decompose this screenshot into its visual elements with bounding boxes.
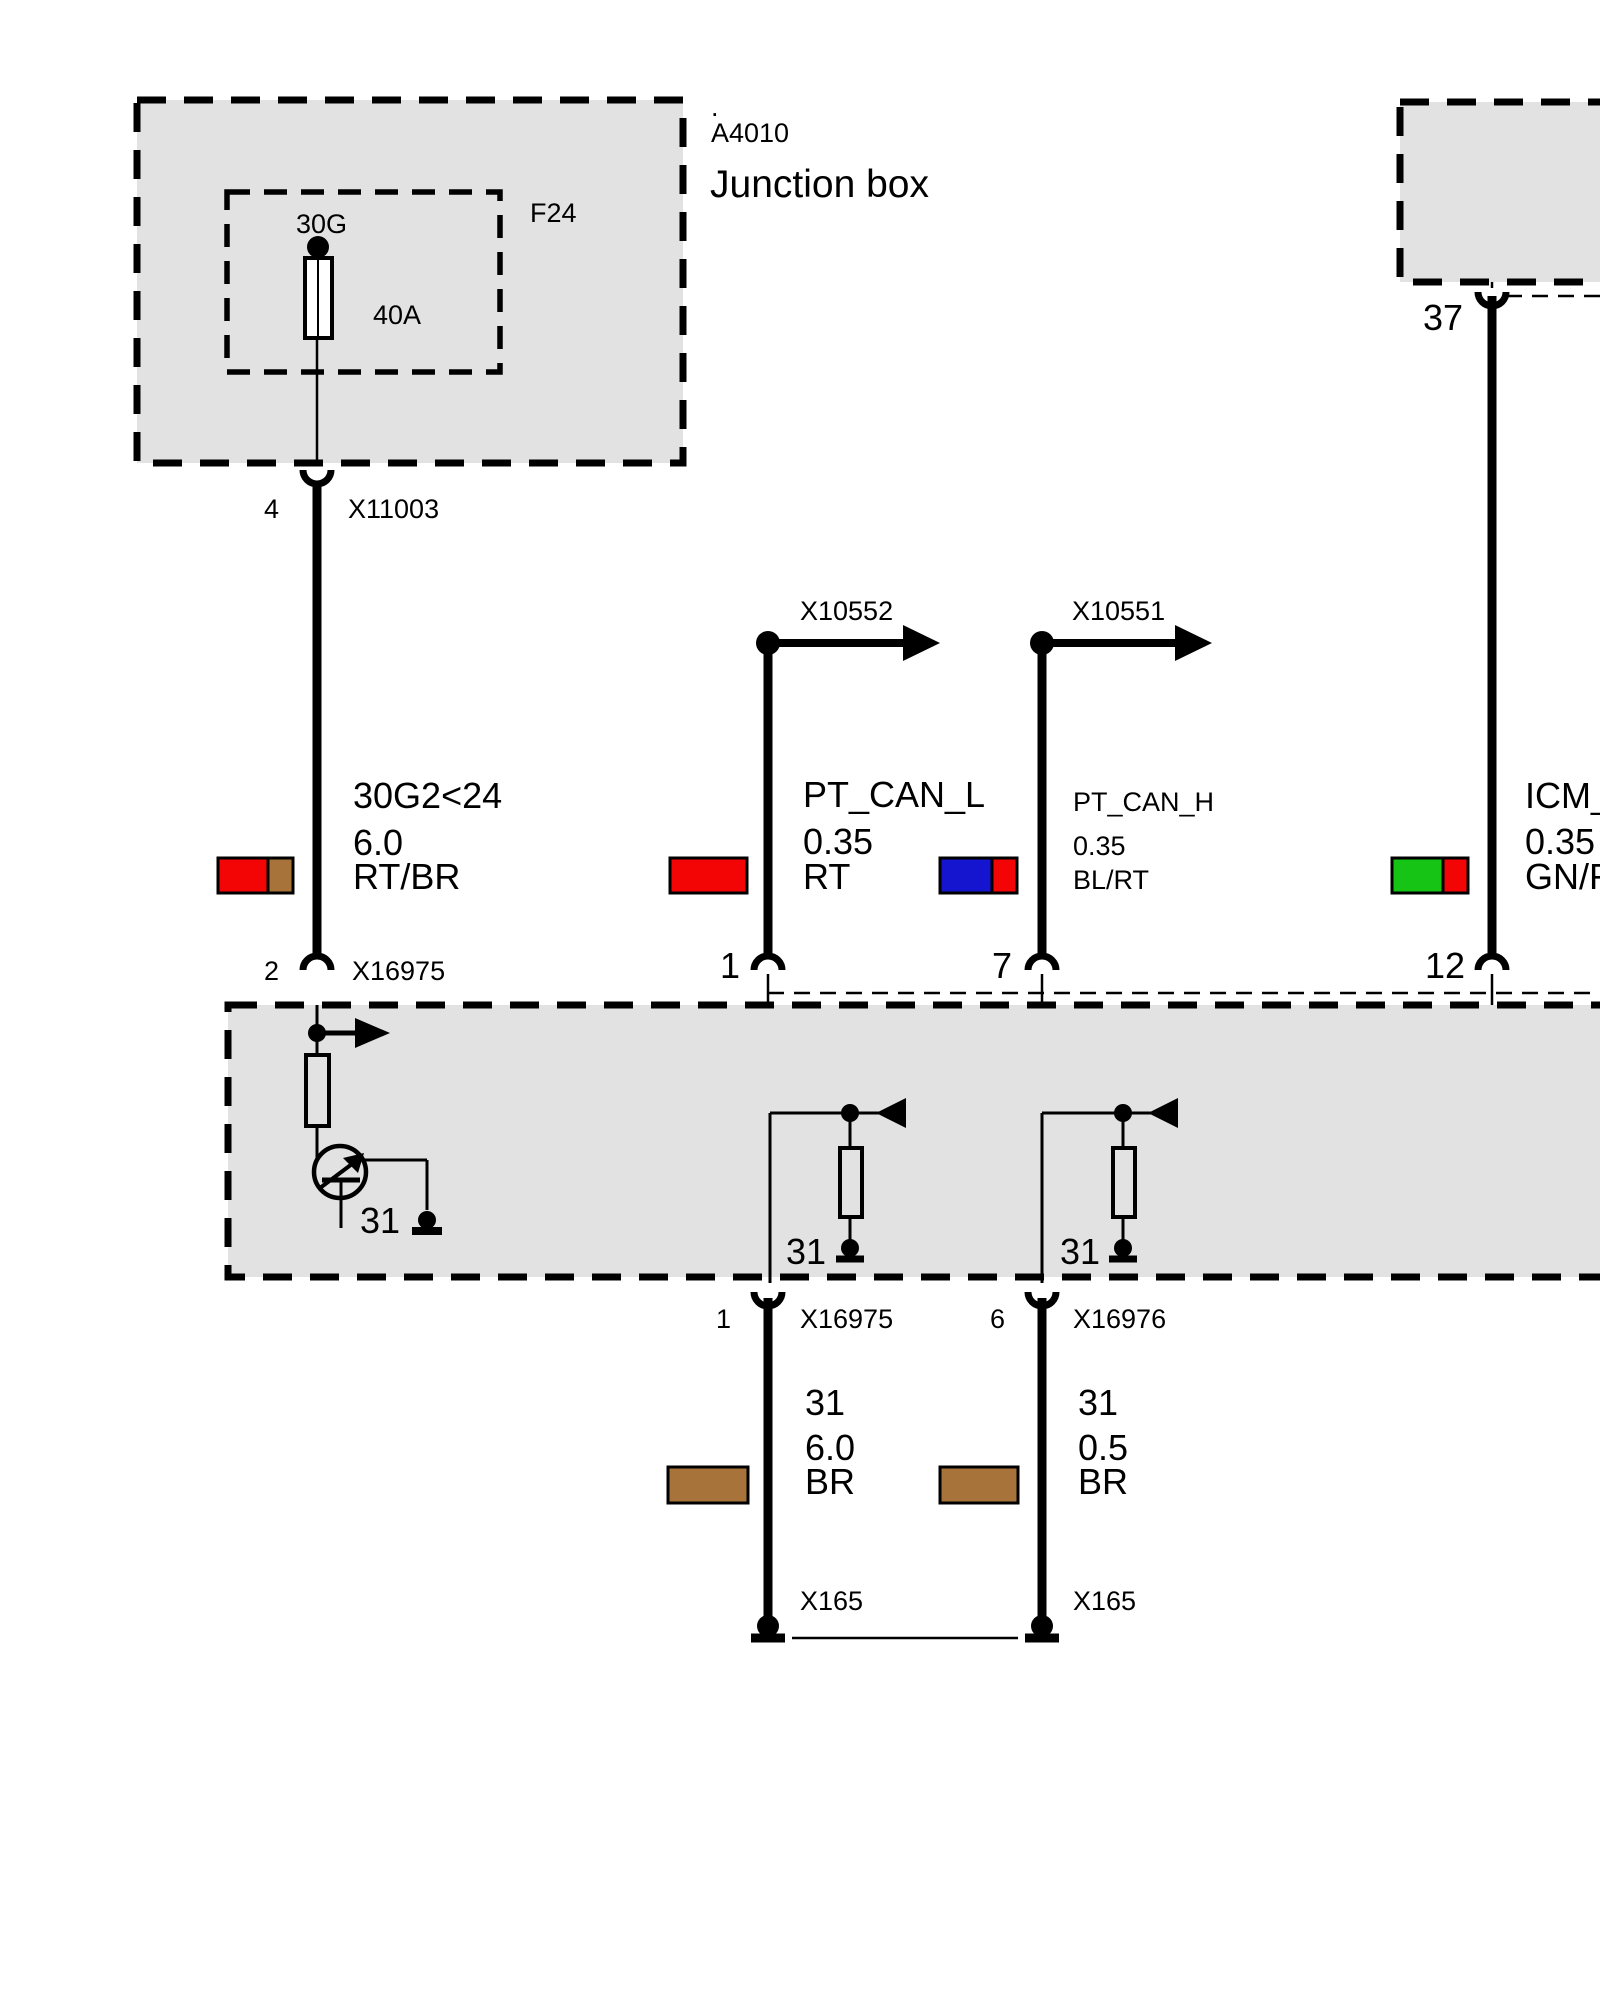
connector-socket-icon <box>1478 956 1506 970</box>
module-pin-12-label: 12 <box>1425 945 1465 986</box>
module-pin-1-label: 1 <box>720 945 740 986</box>
module-pin-7-label: 7 <box>992 945 1012 986</box>
bottom-pin-6-label: 6 <box>990 1304 1005 1334</box>
can-high-gauge-label: 0.35 <box>1073 831 1126 861</box>
fuse-slot-label: F24 <box>530 198 577 228</box>
connector-socket-icon <box>303 470 331 484</box>
ground-left-color-swatch <box>668 1467 748 1503</box>
internal-ground-31-label: 31 <box>360 1200 400 1241</box>
connector-x165-left-label: X165 <box>800 1586 863 1616</box>
connector-x16976-label: X16976 <box>1073 1304 1166 1334</box>
main-module-outline <box>228 1005 1600 1277</box>
internal-ground-31-label: 31 <box>786 1231 826 1272</box>
wire-icm: ICM_ 0.35 GN/R 12 <box>1392 296 1600 1007</box>
connector-x10552-label: X10552 <box>800 596 893 626</box>
fuse-symbol <box>305 236 332 338</box>
junction-box-id: A4010 <box>711 118 789 148</box>
ground-right-color-label: BR <box>1078 1461 1128 1502</box>
can-low-color-swatch <box>670 858 747 893</box>
main-module: 31 31 <box>228 1005 1600 1283</box>
power-circuit-label: 30G2<24 <box>353 775 502 816</box>
branch-arrow-icon <box>903 625 940 661</box>
connector-socket-icon <box>303 956 331 970</box>
can-high-color-swatch <box>940 858 1017 893</box>
ground-left-color-label: BR <box>805 1461 855 1502</box>
top-right-module-outline <box>1400 102 1600 282</box>
wiring-diagram: 30G 40A F24 . A4010 Junction box 37 4 X1… <box>0 0 1600 2000</box>
ground-wire-left: 1 X16975 31 6.0 BR X165 <box>668 1292 893 1638</box>
internal-ground-31-label: 31 <box>1060 1231 1100 1272</box>
resistor-symbol <box>306 1055 329 1126</box>
top-right-module: 37 <box>1400 102 1600 338</box>
can-high-circuit-label: PT_CAN_H <box>1073 787 1214 817</box>
power-color-label: RT/BR <box>353 856 460 897</box>
connector-socket-icon <box>754 956 782 970</box>
connector-socket-icon <box>1028 956 1056 970</box>
ground-left-circuit-label: 31 <box>805 1382 845 1423</box>
power-color-swatch <box>218 858 293 893</box>
fuse-circuit-label: 30G <box>296 209 347 239</box>
can-high-color-label: BL/RT <box>1073 865 1149 895</box>
icm-circuit-label: ICM_ <box>1525 775 1600 816</box>
ground-right-color-swatch <box>940 1467 1018 1503</box>
ground-wire-right: 6 X16976 31 0.5 BR X165 <box>940 1292 1166 1638</box>
icm-color-swatch <box>1392 858 1468 893</box>
icm-color-label: GN/R <box>1525 856 1600 897</box>
junction-out-pin: 4 <box>264 494 279 524</box>
connector-x16975-top-label: X16975 <box>352 956 445 986</box>
junction-box-title: Junction box <box>710 163 929 206</box>
can-low-color-label: RT <box>803 856 850 897</box>
ground-symbol <box>1025 1615 1059 1638</box>
resistor-symbol <box>1113 1148 1135 1217</box>
ground-right-circuit-label: 31 <box>1078 1382 1118 1423</box>
wiring-diagram-page: 30G 40A F24 . A4010 Junction box 37 4 X1… <box>0 0 1600 2000</box>
connector-x10551-label: X10551 <box>1072 596 1165 626</box>
connector-x16975-bottom-label: X16975 <box>800 1304 893 1334</box>
connector-x165-right-label: X165 <box>1073 1586 1136 1616</box>
can-low-circuit-label: PT_CAN_L <box>803 774 985 815</box>
wire-can-low: X10552 PT_CAN_L 0.35 RT 1 <box>670 596 985 1007</box>
junction-box: 30G 40A F24 <box>137 100 683 463</box>
module-pin-2-label: 2 <box>264 956 279 986</box>
fuse-rating-label: 40A <box>373 300 421 330</box>
bottom-pin-1-label: 1 <box>716 1304 731 1334</box>
ground-symbol <box>751 1615 785 1638</box>
branch-arrow-icon <box>1175 625 1212 661</box>
junction-box-outline <box>137 100 683 463</box>
resistor-symbol <box>840 1148 862 1217</box>
pin-37-label: 37 <box>1423 297 1463 338</box>
connector-x11003-label: X11003 <box>348 494 439 524</box>
